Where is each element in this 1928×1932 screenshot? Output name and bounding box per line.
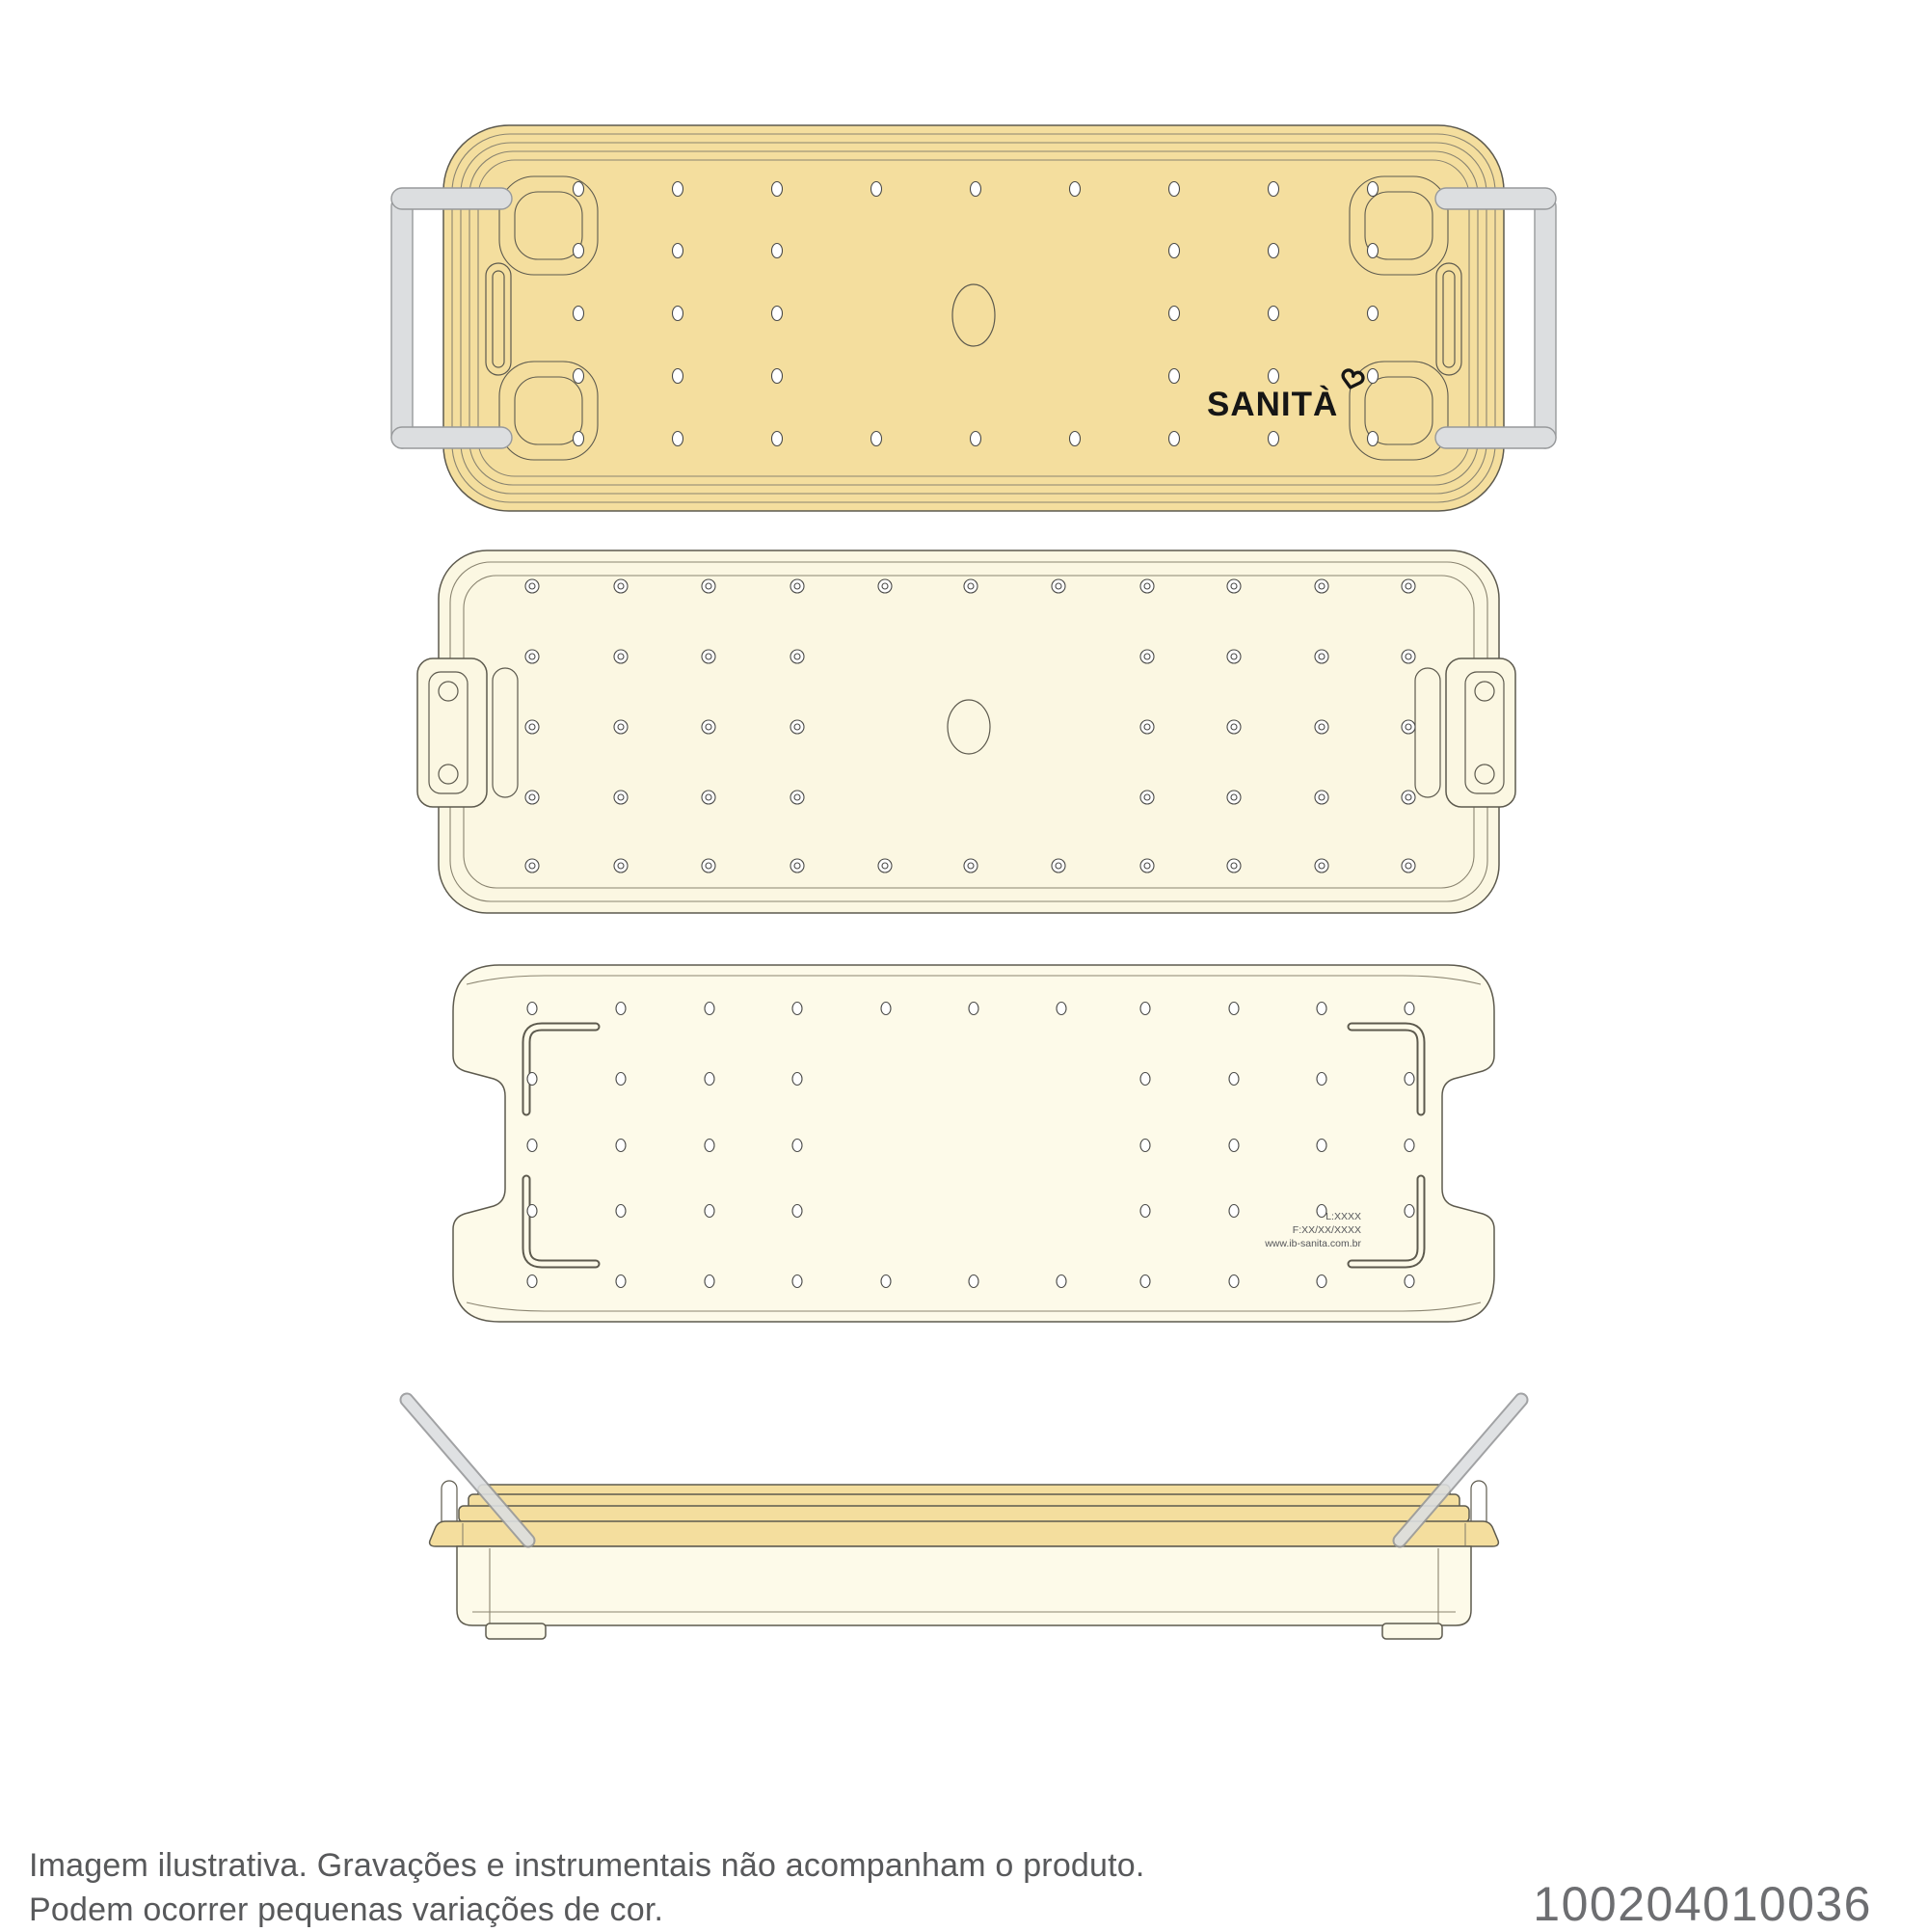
perforation-hole [1140, 1205, 1150, 1218]
perforation-hole-inner [1406, 654, 1411, 659]
perforation-hole [772, 369, 783, 384]
perforation-hole [971, 432, 981, 446]
perforation-hole-inner [706, 583, 711, 589]
perforation-hole [1368, 244, 1379, 258]
perforation-hole [1140, 1003, 1150, 1015]
perforation-hole-inner [794, 863, 800, 869]
perforation-hole [616, 1275, 626, 1288]
perforation-hole-inner [529, 863, 535, 869]
sanita-logo-text: SANITÀ [1207, 385, 1338, 423]
perforation-hole-inner [794, 583, 800, 589]
perforation-hole-inner [1319, 583, 1325, 589]
perforation-hole [1368, 369, 1379, 384]
perforation-hole [1317, 1275, 1326, 1288]
perforation-hole [673, 307, 683, 321]
perforation-hole [616, 1003, 626, 1015]
perforation-hole [792, 1205, 802, 1218]
tray-top-view [410, 545, 1523, 921]
perforation-hole-inner [968, 863, 974, 869]
perforation-hole [616, 1140, 626, 1152]
perforation-hole [881, 1003, 891, 1015]
perforation-hole [1317, 1003, 1326, 1015]
perforation-hole [673, 369, 683, 384]
perforation-hole [574, 432, 584, 446]
perforation-hole [574, 244, 584, 258]
perforation-hole [574, 307, 584, 321]
perforation-hole-inner [882, 583, 888, 589]
perforation-hole [1169, 432, 1180, 446]
foot-left [486, 1623, 546, 1639]
perforation-hole-inner [1144, 654, 1150, 659]
perforation-hole-inner [618, 724, 624, 730]
perforation-hole-inner [1319, 724, 1325, 730]
perforation-hole [1269, 182, 1279, 197]
perforation-hole-inner [1144, 863, 1150, 869]
perforation-hole [1169, 182, 1180, 197]
perforation-hole-inner [1406, 724, 1411, 730]
perforation-hole [971, 182, 981, 197]
perforation-hole-inner [1231, 724, 1237, 730]
perforation-hole [1229, 1275, 1239, 1288]
perforation-hole [705, 1205, 714, 1218]
side-elevation-view [386, 1388, 1542, 1639]
perforation-hole [673, 182, 683, 197]
perforation-hole-inner [794, 724, 800, 730]
engraving-date: F:XX/XX/XXXX [1293, 1224, 1361, 1236]
perforation-hole [705, 1140, 714, 1152]
perforation-hole [574, 182, 584, 197]
perforation-hole-inner [794, 794, 800, 800]
perforation-hole [673, 432, 683, 446]
perforation-hole-inner [1406, 794, 1411, 800]
perforation-hole [1269, 244, 1279, 258]
foot-right [1382, 1623, 1442, 1639]
perforation-hole [1269, 369, 1279, 384]
perforation-hole [616, 1073, 626, 1086]
perforation-hole [1368, 307, 1379, 321]
perforation-hole [1317, 1140, 1326, 1152]
perforation-hole-inner [1319, 863, 1325, 869]
perforation-hole [772, 307, 783, 321]
perforation-hole-inner [1144, 724, 1150, 730]
perforation-hole-inner [1231, 794, 1237, 800]
perforation-hole [1405, 1205, 1414, 1218]
perforation-hole [1140, 1140, 1150, 1152]
perforation-hole [1140, 1275, 1150, 1288]
side-lid-band [430, 1521, 1499, 1546]
disclaimer-line-2: Podem ocorrer pequenas variações de cor. [29, 1888, 1145, 1932]
perforation-hole-inner [529, 654, 535, 659]
perforation-hole-inner [794, 654, 800, 659]
perforation-hole-inner [1056, 863, 1061, 869]
perforation-hole [527, 1073, 537, 1086]
perforation-hole [1229, 1073, 1239, 1086]
perforation-hole [1070, 182, 1081, 197]
perforation-hole-inner [1144, 583, 1150, 589]
perforation-hole-inner [618, 583, 624, 589]
perforation-hole [1169, 369, 1180, 384]
perforation-hole [705, 1073, 714, 1086]
perforation-hole-inner [1056, 583, 1061, 589]
perforation-hole [616, 1205, 626, 1218]
perforation-hole [705, 1275, 714, 1288]
perforation-hole [1169, 307, 1180, 321]
perforation-hole [1057, 1003, 1066, 1015]
perforation-hole [1405, 1140, 1414, 1152]
perforation-hole [1269, 432, 1279, 446]
perforation-hole-inner [706, 863, 711, 869]
perforation-hole [1229, 1205, 1239, 1218]
perforation-hole-inner [706, 724, 711, 730]
perforation-hole-inner [618, 794, 624, 800]
perforation-hole-inner [1231, 863, 1237, 869]
perforation-hole [1405, 1073, 1414, 1086]
perforation-hole [527, 1205, 537, 1218]
perforation-hole [881, 1275, 891, 1288]
perforation-hole [792, 1073, 802, 1086]
perforation-hole [969, 1003, 978, 1015]
perforation-hole-inner [1406, 583, 1411, 589]
perforation-hole-inner [1406, 863, 1411, 869]
perforation-hole [1140, 1073, 1150, 1086]
perforation-hole [1229, 1003, 1239, 1015]
side-body [457, 1546, 1471, 1625]
perforation-hole [792, 1275, 802, 1288]
perforation-hole-inner [1319, 794, 1325, 800]
perforation-hole-inner [618, 654, 624, 659]
perforation-hole [1405, 1003, 1414, 1015]
perforation-hole-inner [968, 583, 974, 589]
base-bottom-view: L:XXXX F:XX/XX/XXXX www.ib-sanita.com.br [443, 959, 1504, 1330]
perforation-hole [1405, 1275, 1414, 1288]
perforation-hole [527, 1003, 537, 1015]
perforation-hole-inner [1231, 654, 1237, 659]
perforation-hole [1317, 1073, 1326, 1086]
perforation-hole [527, 1275, 537, 1288]
disclaimer-line-1: Imagem ilustrativa. Gravações e instrume… [29, 1843, 1145, 1888]
side-lid [430, 1485, 1499, 1546]
perforation-hole [673, 244, 683, 258]
perforation-hole-inner [529, 724, 535, 730]
perforation-hole [871, 432, 882, 446]
perforation-hole [792, 1003, 802, 1015]
perforation-hole-inner [1144, 794, 1150, 800]
perforation-hole [772, 182, 783, 197]
perforation-hole [772, 432, 783, 446]
perforation-hole [1269, 307, 1279, 321]
perforation-hole-inner [529, 583, 535, 589]
perforation-hole [1229, 1140, 1239, 1152]
perforation-hole-inner [618, 863, 624, 869]
perforation-hole-inner [706, 654, 711, 659]
perforation-hole-inner [529, 794, 535, 800]
perforation-hole [792, 1140, 802, 1152]
perforation-hole [871, 182, 882, 197]
perforation-hole [527, 1140, 537, 1152]
perforation-hole [1169, 244, 1180, 258]
perforation-hole [969, 1275, 978, 1288]
perforation-hole [1368, 432, 1379, 446]
tray-body [439, 550, 1499, 913]
perforation-hole [1057, 1275, 1066, 1288]
base-body [453, 965, 1494, 1322]
perforation-hole-inner [882, 863, 888, 869]
engraving-lot: L:XXXX [1325, 1211, 1361, 1222]
perforation-hole [1070, 432, 1081, 446]
perforation-hole-inner [1231, 583, 1237, 589]
product-illustration: SANITÀ [0, 0, 1928, 1928]
lid-top-view: SANITÀ [386, 121, 1562, 516]
perforation-hole [705, 1003, 714, 1015]
perforation-hole [1368, 182, 1379, 197]
perforation-hole [574, 369, 584, 384]
engraving-website: www.ib-sanita.com.br [1264, 1238, 1361, 1249]
perforation-hole-inner [706, 794, 711, 800]
perforation-hole [772, 244, 783, 258]
perforation-hole-inner [1319, 654, 1325, 659]
disclaimer: Imagem ilustrativa. Gravações e instrume… [29, 1843, 1145, 1932]
product-code: 100204010036 [1533, 1876, 1872, 1932]
